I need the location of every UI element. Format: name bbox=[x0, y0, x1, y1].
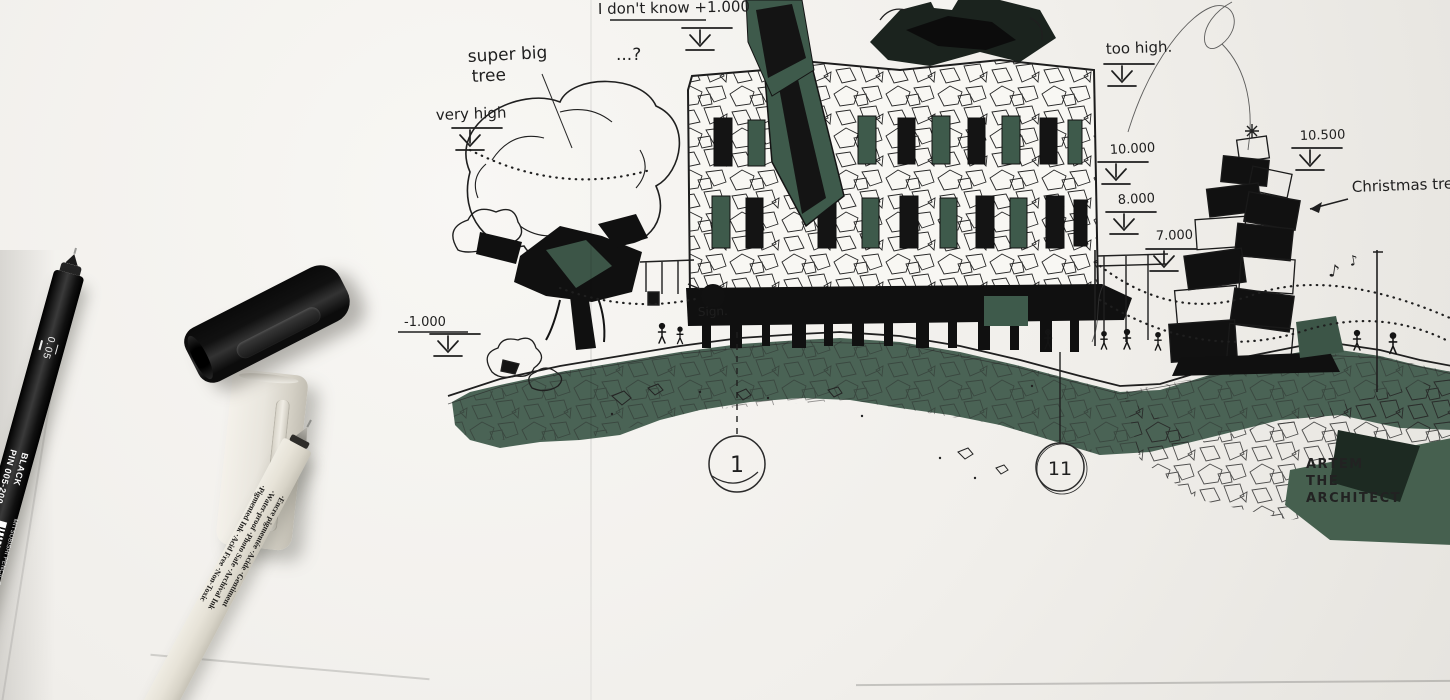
svg-text:...?: ...? bbox=[616, 45, 641, 65]
svg-text:10.500: 10.500 bbox=[1300, 127, 1346, 144]
size-tick bbox=[54, 345, 58, 355]
rooftop-trees bbox=[870, 0, 1056, 66]
tree-trunk bbox=[570, 294, 596, 350]
annotation-very-high: very high bbox=[436, 104, 507, 150]
annotation-level-10000: 10.000 bbox=[1098, 141, 1156, 184]
svg-text:Christmas tree: Christmas tree bbox=[1352, 174, 1450, 196]
svg-text:7.000: 7.000 bbox=[1156, 228, 1194, 244]
building-base bbox=[686, 284, 1132, 352]
svg-text:I don't know +1.000: I don't know +1.000 bbox=[598, 0, 750, 18]
black-pen-size-marking: 0.05 bbox=[37, 334, 61, 361]
annotation-level-minus-1000: -1.000 bbox=[398, 315, 480, 356]
annotation-christmas-tree: Christmas tree bbox=[1310, 174, 1450, 213]
annotation-level-10500: 10.500 bbox=[1292, 127, 1346, 170]
svg-text:ARCHITECT: ARCHITECT bbox=[1306, 491, 1401, 506]
annotation-super-big-tree: super big tree bbox=[467, 43, 572, 148]
annotation-sign: Sign. bbox=[698, 304, 728, 319]
annotation-level-8000: 8.000 bbox=[1106, 191, 1156, 234]
black-pen-nib bbox=[73, 248, 77, 255]
svg-text:8.000: 8.000 bbox=[1117, 191, 1155, 208]
building-stone-texture bbox=[688, 60, 1098, 296]
svg-text:tree: tree bbox=[471, 65, 506, 87]
svg-text:11: 11 bbox=[1048, 458, 1072, 480]
annotation-too-high: too high. bbox=[1104, 38, 1173, 86]
black-pen-size-text: 0.05 bbox=[40, 335, 57, 361]
photo-of-architectural-sketch: ♪ ♪ 1 11 bbox=[0, 0, 1450, 700]
svg-text:very high: very high bbox=[436, 104, 507, 124]
svg-text:THE: THE bbox=[1306, 474, 1339, 489]
svg-text:-1.000: -1.000 bbox=[404, 315, 446, 330]
svg-text:ARTEM: ARTEM bbox=[1306, 457, 1364, 472]
annotation-i-dont-know: I don't know +1.000 ...? bbox=[598, 0, 750, 65]
tree-star bbox=[1245, 124, 1259, 138]
svg-text:10.000: 10.000 bbox=[1109, 141, 1155, 158]
cream-pen-nib bbox=[306, 420, 312, 428]
svg-text:super big: super big bbox=[467, 43, 548, 67]
music-notes: ♪ ♪ bbox=[1327, 253, 1359, 283]
svg-text:♪: ♪ bbox=[1327, 261, 1341, 282]
svg-text:too high.: too high. bbox=[1106, 38, 1173, 58]
svg-text:♪: ♪ bbox=[1348, 253, 1360, 270]
building bbox=[600, 0, 1168, 352]
svg-text:1: 1 bbox=[730, 453, 744, 478]
